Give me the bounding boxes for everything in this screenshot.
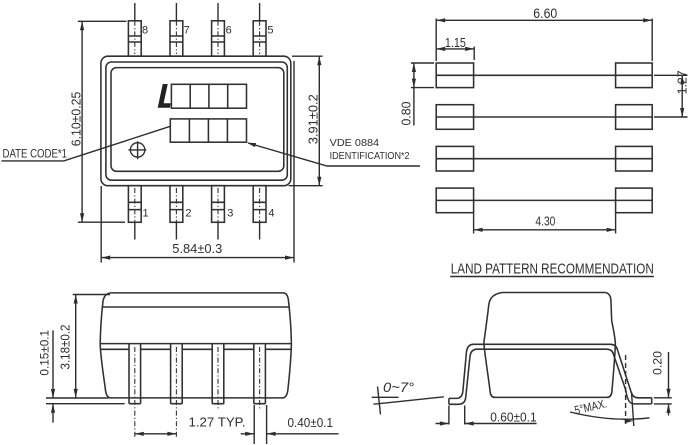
svg-text:1.27 TYP.: 1.27 TYP.	[189, 416, 246, 430]
svg-text:6.10±0.25: 6.10±0.25	[69, 92, 83, 147]
svg-text:IDENTIFICATION*2: IDENTIFICATION*2	[330, 150, 410, 162]
svg-text:LAND PATTERN RECOMMENDATION: LAND PATTERN RECOMMENDATION	[451, 261, 654, 277]
svg-text:8: 8	[142, 25, 148, 37]
svg-text:0.60±0.1: 0.60±0.1	[490, 411, 536, 425]
svg-text:4: 4	[268, 208, 274, 220]
svg-text:5.84±0.3: 5.84±0.3	[172, 242, 222, 256]
svg-text:0.20: 0.20	[651, 351, 665, 375]
svg-text:0.15±0.1: 0.15±0.1	[38, 330, 52, 376]
svg-text:0~7°: 0~7°	[383, 379, 414, 395]
svg-text:VDE 0884: VDE 0884	[330, 137, 380, 149]
svg-text:5°MAX.: 5°MAX.	[573, 396, 608, 417]
svg-text:3.91±0.2: 3.91±0.2	[306, 94, 320, 144]
svg-text:1.27: 1.27	[675, 70, 690, 94]
svg-text:0.80: 0.80	[399, 102, 414, 126]
svg-text:6.60: 6.60	[533, 6, 557, 21]
svg-text:2: 2	[185, 208, 191, 220]
svg-text:7: 7	[184, 25, 190, 37]
svg-text:5: 5	[267, 25, 273, 37]
svg-text:1: 1	[143, 208, 149, 220]
svg-text:0.40±0.1: 0.40±0.1	[288, 416, 334, 430]
svg-text:6: 6	[226, 25, 232, 37]
svg-text:1.15: 1.15	[445, 35, 466, 50]
svg-text:3.18±0.2: 3.18±0.2	[59, 324, 73, 369]
svg-text:DATE CODE*1: DATE CODE*1	[3, 146, 68, 160]
svg-text:3: 3	[227, 208, 233, 220]
svg-text:4.30: 4.30	[535, 213, 555, 228]
